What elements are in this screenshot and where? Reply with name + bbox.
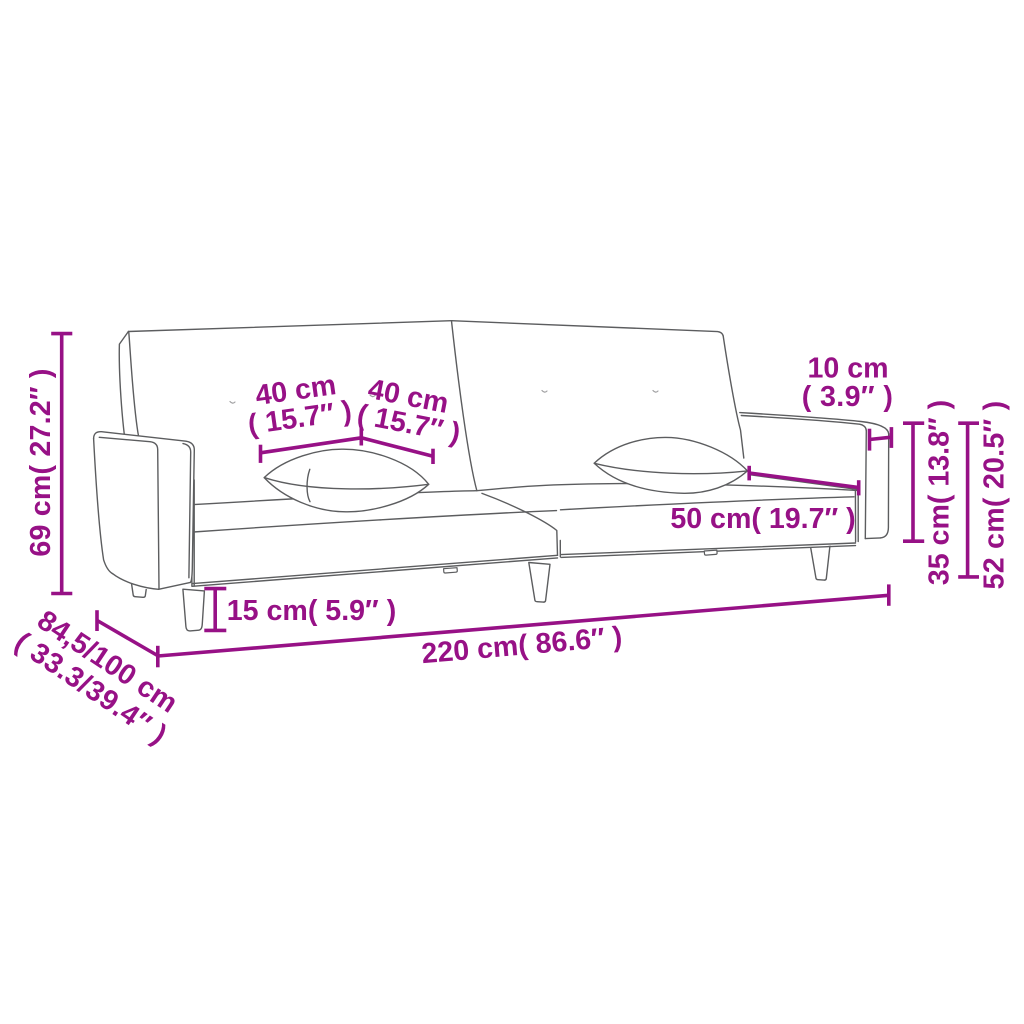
svg-text:( 3.9″ ): ( 3.9″ ) [802, 381, 894, 413]
svg-text:15 cm( 5.9″ ): 15 cm( 5.9″ ) [227, 595, 396, 627]
svg-text:52 cm( 20.5″ ): 52 cm( 20.5″ ) [979, 401, 1011, 590]
svg-text:35 cm( 13.8″ ): 35 cm( 13.8″ ) [924, 400, 956, 585]
svg-text:50 cm( 19.7″ ): 50 cm( 19.7″ ) [670, 503, 855, 535]
svg-text:10 cm: 10 cm [807, 353, 888, 385]
svg-text:69 cm( 27.2″ ): 69 cm( 27.2″ ) [25, 368, 57, 556]
